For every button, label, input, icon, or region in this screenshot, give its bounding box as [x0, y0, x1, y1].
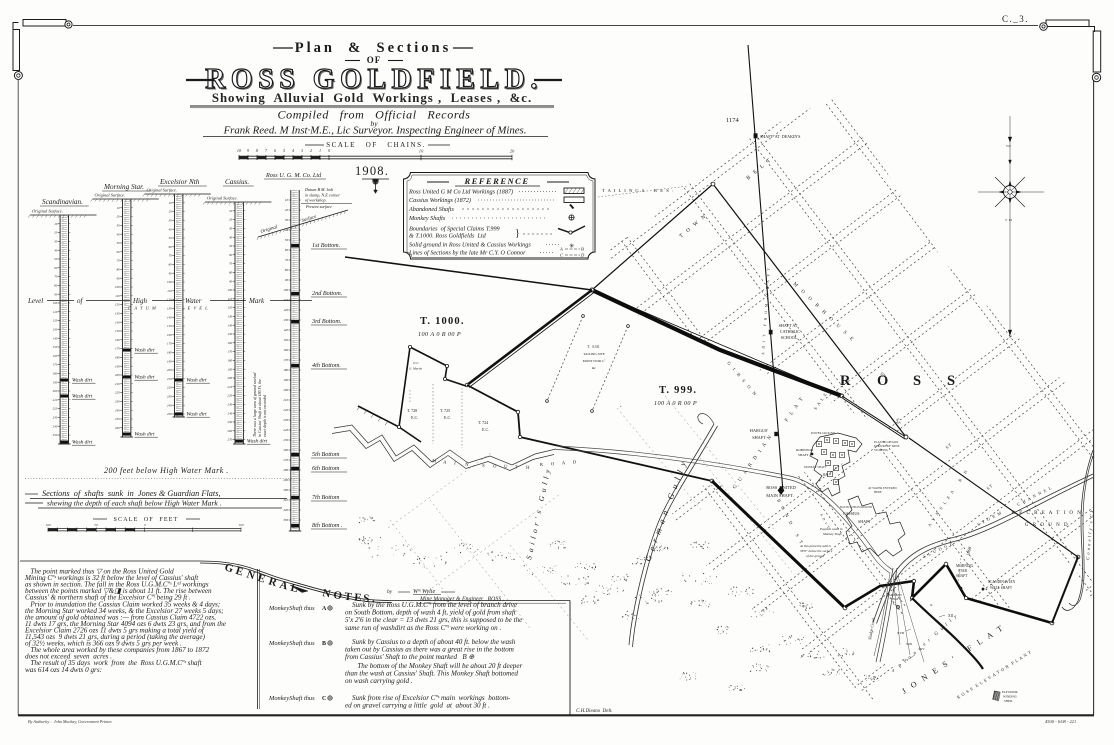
svg-text:40: 40	[229, 235, 233, 239]
svg-text:20: 20	[229, 218, 233, 222]
svg-text:XIX: XIX	[906, 642, 913, 646]
svg-text:130: 130	[167, 307, 172, 311]
svg-text:180: 180	[53, 372, 58, 376]
svg-text:120: 120	[167, 298, 172, 302]
svg-text:140: 140	[228, 323, 233, 327]
svg-text:100: 100	[115, 285, 120, 289]
svg-text:C._3.: C._3.	[1002, 14, 1029, 24]
svg-text:Ross U. G. M. Co. Ltd: Ross U. G. M. Co. Ltd	[265, 172, 322, 179]
svg-text:MONT D'OR Cº: MONT D'OR Cº	[583, 359, 606, 363]
svg-text:38’6″ below the surface: 38’6″ below the surface	[800, 549, 833, 553]
svg-text:50: 50	[169, 236, 173, 240]
svg-text:Present surface: Present surface	[305, 204, 332, 209]
svg-text:E.C.: E.C.	[444, 415, 451, 420]
svg-text:200: 200	[167, 368, 172, 372]
svg-text:60: 60	[229, 253, 233, 257]
svg-text:by: by	[387, 589, 393, 595]
svg-text:MonkeyShaft thus: MonkeyShaft thus	[268, 695, 315, 702]
svg-text:70: 70	[117, 259, 121, 263]
svg-text:R E C R E A T I O N: R E C R E A T I O N	[1012, 511, 1083, 516]
svg-text:160: 160	[228, 341, 233, 345]
svg-text:240: 240	[228, 411, 233, 415]
svg-text:D A T U M: D A T U M	[127, 306, 157, 311]
svg-text:MonkeyShaft thus: MonkeyShaft thus	[268, 640, 315, 647]
svg-text:110: 110	[284, 298, 289, 302]
svg-text:80: 80	[285, 268, 289, 272]
svg-text:170: 170	[283, 358, 288, 362]
svg-text:Original Surface.: Original Surface.	[32, 209, 63, 214]
svg-text:100: 100	[238, 523, 243, 527]
svg-text:1st Bottom.: 1st Bottom.	[312, 242, 340, 249]
svg-text:AT WATER ENTERED: AT WATER ENTERED	[868, 486, 898, 490]
svg-text:SHAFT: SHAFT	[858, 519, 871, 524]
svg-text:100 A 0 R 00 P: 100 A 0 R 00 P	[418, 331, 461, 338]
svg-text:270: 270	[228, 438, 233, 442]
svg-text:20: 20	[510, 149, 515, 154]
svg-text:T M: T M	[1005, 218, 1012, 222]
svg-text:150: 150	[115, 329, 120, 333]
svg-text:250: 250	[228, 420, 233, 424]
svg-text:5th Bottom: 5th Bottom	[312, 451, 340, 458]
svg-text:220: 220	[283, 408, 288, 412]
svg-text:There was a large area of grou: There was a large area of ground worked	[253, 373, 257, 437]
svg-text:Original Surface.: Original Surface.	[207, 196, 238, 201]
svg-text:Excelsior Nth: Excelsior Nth	[159, 178, 200, 186]
svg-text:CASSIUS: CASSIUS	[843, 511, 859, 516]
svg-text:Wash dirt: Wash dirt	[247, 439, 268, 445]
svg-text:180: 180	[283, 368, 288, 372]
svg-text:210: 210	[53, 398, 58, 402]
svg-text:4th Bottom.: 4th Bottom.	[312, 362, 341, 369]
svg-text:T. 999.: T. 999.	[659, 385, 697, 396]
svg-text:SHAFT AT DEAKIN'S: SHAFT AT DEAKIN'S	[760, 134, 801, 139]
svg-text:Water: Water	[185, 297, 202, 305]
svg-text:Original Surface.: Original Surface.	[95, 193, 126, 198]
svg-text:160: 160	[115, 338, 120, 342]
svg-text:of the ground: of the ground	[806, 554, 824, 558]
svg-text:60: 60	[54, 266, 58, 270]
svg-text:POWER GROUND: POWER GROUND	[811, 431, 836, 435]
svg-text:MonkeyShaft thus: MonkeyShaft thus	[268, 605, 315, 612]
svg-text:Cassius Workings (1872): Cassius Workings (1872)	[409, 197, 471, 204]
svg-text:Abandoned Shafts: Abandoned Shafts	[408, 206, 454, 213]
svg-text:E.C.: E.C.	[482, 427, 489, 432]
svg-text:T: T	[515, 464, 518, 469]
svg-text:170: 170	[53, 363, 58, 367]
svg-text:T.N: T.N	[1006, 144, 1012, 148]
svg-text:TAILING SITE: TAILING SITE	[583, 352, 604, 356]
svg-text:170: 170	[167, 342, 172, 346]
svg-text:T. 725: T. 725	[440, 408, 450, 413]
svg-text:220: 220	[115, 391, 120, 395]
svg-text:300: 300	[283, 488, 288, 492]
svg-text:200: 200	[283, 388, 288, 392]
svg-text:High: High	[132, 297, 148, 305]
svg-text:150: 150	[53, 345, 58, 349]
svg-text:230: 230	[53, 416, 58, 420]
svg-text:Wash dirt: Wash dirt	[72, 440, 93, 446]
svg-text:250: 250	[167, 412, 172, 416]
svg-text:7th Bottom: 7th Bottom	[312, 494, 340, 501]
svg-text:180: 180	[115, 356, 120, 360]
svg-text:70: 70	[54, 275, 58, 279]
svg-text:T. 1000.: T. 1000.	[420, 316, 465, 327]
svg-text:10: 10	[169, 201, 173, 205]
svg-text:120: 120	[53, 319, 58, 323]
svg-text:C: C	[322, 696, 326, 702]
svg-text:170: 170	[115, 347, 120, 351]
svg-text:&c: &c	[592, 366, 597, 370]
svg-text:A: A	[322, 606, 327, 612]
svg-text:40: 40	[117, 232, 121, 236]
svg-text:110: 110	[115, 294, 120, 298]
svg-text:8th Bottom .: 8th Bottom .	[312, 522, 342, 529]
svg-text:320: 320	[283, 508, 288, 512]
svg-text:Cassius.: Cassius.	[225, 178, 249, 186]
svg-text:SHAFT: SHAFT	[891, 597, 901, 601]
svg-text:C.H.Dieano Delt.: C.H.Dieano Delt.	[576, 709, 613, 714]
svg-text:4500 - 6/08 - 221: 4500 - 6/08 - 221	[1045, 719, 1076, 724]
svg-text:WINDING: WINDING	[1003, 695, 1018, 699]
svg-text:was 614 ozs 14 dwts 0 grs:: was 614 ozs 14 dwts 0 grs:	[25, 666, 102, 674]
svg-text:190: 190	[283, 378, 288, 382]
svg-text:1908.: 1908.	[355, 164, 389, 178]
svg-text:270: 270	[283, 458, 288, 462]
svg-text:250: 250	[115, 417, 120, 421]
svg-text:90: 90	[117, 276, 121, 280]
svg-text:190: 190	[228, 367, 233, 371]
svg-text:80: 80	[229, 271, 233, 275]
svg-text:HERE: HERE	[874, 490, 882, 494]
svg-text:O.C.: O.C.	[413, 361, 419, 365]
svg-text:30: 30	[117, 224, 121, 228]
svg-text:20: 20	[169, 210, 173, 214]
svg-text:30: 30	[54, 240, 58, 244]
svg-text:70: 70	[229, 262, 233, 266]
svg-text:REFERENCE: REFERENCE	[464, 176, 530, 186]
svg-text:2nd Bottom.: 2nd Bottom.	[312, 290, 342, 297]
svg-text:90: 90	[285, 278, 289, 282]
svg-text:E.C.: E.C.	[411, 415, 418, 420]
svg-text:240: 240	[53, 424, 58, 428]
svg-text:210: 210	[115, 382, 120, 386]
svg-text:CATHOLIC: CATHOLIC	[780, 329, 801, 334]
svg-text:Level: Level	[27, 297, 43, 305]
svg-text:50: 50	[117, 241, 121, 245]
svg-text:Frank Reed. M Inst·M.E., Lic S: Frank Reed. M Inst·M.E., Lic Surveyor. I…	[223, 125, 527, 137]
svg-text:Wash dirt: Wash dirt	[186, 412, 207, 418]
svg-text:4: 4	[292, 148, 294, 153]
svg-text:160: 160	[167, 333, 172, 337]
svg-text:80: 80	[54, 284, 58, 288]
svg-text:210: 210	[283, 398, 288, 402]
svg-text:Morning Star.: Morning Star.	[103, 183, 144, 191]
svg-text:Solid ground in Ross United &: Solid ground in Ross United & Cassius Wo…	[409, 242, 531, 249]
svg-text:Wash dirt: Wash dirt	[186, 378, 207, 384]
svg-text:70: 70	[169, 254, 173, 258]
svg-text:on wash carrying gold .: on wash carrying gold .	[345, 677, 413, 685]
svg-text:40: 40	[169, 227, 173, 231]
svg-text:130: 130	[228, 315, 233, 319]
svg-text:10: 10	[229, 209, 233, 213]
svg-text:140: 140	[283, 328, 288, 332]
svg-text:80: 80	[169, 263, 173, 267]
svg-text:Boundaries of Special Claims: Boundaries of Special Claims T.999	[409, 226, 500, 233]
svg-text:20: 20	[117, 215, 121, 219]
svg-text:20: 20	[285, 208, 289, 212]
svg-text:230: 230	[283, 418, 288, 422]
svg-text:140: 140	[53, 336, 58, 340]
svg-text:T A I L I N G S R E S :: T A I L I N G S R E S :	[602, 188, 674, 193]
svg-text:ROBINSON: ROBINSON	[796, 448, 814, 452]
svg-text:0: 0	[144, 523, 146, 527]
svg-text:1174: 1174	[726, 117, 740, 124]
svg-text:50: 50	[229, 244, 233, 248]
svg-text:120: 120	[228, 306, 233, 310]
svg-text:100: 100	[45, 523, 50, 527]
svg-text:exact depth is not recorded: exact depth is not recorded	[263, 395, 267, 437]
svg-text:BASTICA HIGH GROUND: BASTICA HIGH GROUND	[840, 506, 872, 509]
svg-text:80: 80	[117, 268, 121, 272]
svg-text:2: 2	[310, 148, 312, 153]
svg-text:Sections of shafts sunk in: Sections of shafts sunk in Jones & Guard…	[42, 489, 221, 498]
svg-text:210: 210	[228, 385, 233, 389]
svg-text:}: }	[515, 228, 520, 239]
svg-text:260: 260	[228, 429, 233, 433]
svg-text:240: 240	[115, 408, 120, 412]
svg-text:150: 150	[283, 338, 288, 342]
svg-text:230: 230	[167, 395, 172, 399]
svg-text:60: 60	[117, 250, 121, 254]
svg-text:Wash dirt: Wash dirt	[134, 375, 155, 381]
svg-text:G. Martin: G. Martin	[409, 367, 423, 371]
svg-text:220: 220	[53, 407, 58, 411]
svg-text:G R O U N D: G R O U N D	[1025, 523, 1069, 528]
svg-text:SCANDINAVIAN: SCANDINAVIAN	[988, 580, 1015, 584]
svg-text:Wash dirt: Wash dirt	[134, 348, 155, 354]
svg-text:Mark: Mark	[248, 297, 265, 305]
svg-text:SHAFT AT: SHAFT AT	[779, 323, 798, 328]
svg-text:40: 40	[54, 248, 58, 252]
svg-text:T. 724: T. 724	[478, 420, 488, 425]
svg-text:ed on gravel carrying a little: ed on gravel carrying a little gold at a…	[345, 702, 490, 710]
svg-text:220: 220	[228, 394, 233, 398]
svg-text:& T.1000. Ross Goldfields Ltd: & T.1000. Ross Goldfields Ltd	[409, 233, 487, 240]
svg-text:30: 30	[229, 227, 233, 231]
svg-text:Monkey Shaft: Monkey Shaft	[822, 532, 843, 536]
svg-text:B: B	[322, 641, 326, 647]
svg-text:At this point the adit is: At this point the adit is	[799, 544, 831, 548]
svg-text:250: 250	[283, 438, 288, 442]
svg-text:SCALE OF CHAINS.: SCALE OF CHAINS.	[326, 141, 425, 149]
svg-text:Plan & Sections: Plan & Sections	[295, 40, 452, 56]
svg-text:330: 330	[283, 518, 288, 522]
svg-text:100: 100	[283, 288, 288, 292]
svg-text:230: 230	[228, 403, 233, 407]
svg-text:170: 170	[228, 350, 233, 354]
svg-text:90: 90	[229, 279, 233, 283]
svg-text:10: 10	[419, 149, 424, 154]
svg-text:SHAFT: SHAFT	[798, 453, 810, 457]
svg-text:HARGUS': HARGUS'	[750, 428, 769, 433]
svg-text:200: 200	[53, 389, 58, 393]
svg-text:140: 140	[115, 320, 120, 324]
svg-text:Showing Alluvial Gold Worki: Showing Alluvial Gold Workings , Leases …	[212, 91, 532, 105]
svg-text:50: 50	[54, 257, 58, 261]
svg-text:1: 1	[319, 148, 321, 153]
svg-text:Lines of Sections by the late: Lines of Sections by the late Mr C.Y. O …	[408, 250, 526, 257]
svg-text:200: 200	[228, 376, 233, 380]
svg-text:XVII: XVII	[897, 631, 905, 635]
svg-text:140: 140	[167, 315, 172, 319]
svg-text:shewing the depth of each shaf: shewing the depth of each shaft below Hi…	[47, 499, 222, 508]
svg-text:90: 90	[54, 292, 58, 296]
svg-text:ELEVATOR: ELEVATOR	[1002, 690, 1018, 694]
svg-text:50: 50	[285, 238, 289, 242]
svg-text:160: 160	[53, 354, 58, 358]
svg-text:MORNING: MORNING	[956, 564, 974, 568]
svg-text:230: 230	[115, 400, 120, 404]
svg-text:SCALE OF FEET: SCALE OF FEET	[113, 517, 178, 523]
svg-text:200: 200	[115, 373, 120, 377]
svg-text:200 feet below High Water Mark: 200 feet below High Water Mark .	[104, 466, 229, 475]
svg-text:Scandinavian.: Scandinavian.	[42, 198, 83, 206]
svg-text:A: A	[559, 247, 563, 252]
svg-text:Ross United G M Co Ltd Working: Ross United G M Co Ltd Workings (1887)	[408, 189, 513, 196]
svg-text:S: S	[913, 373, 921, 389]
svg-text:30: 30	[169, 219, 173, 223]
svg-text:B: B	[581, 247, 584, 252]
svg-text:WELL SHAFT: WELL SHAFT	[990, 586, 1013, 590]
svg-text:160: 160	[283, 348, 288, 352]
svg-text:6th Bottom: 6th Bottom	[312, 465, 340, 472]
svg-text:Original Surface.: Original Surface.	[147, 188, 178, 193]
svg-text:180: 180	[228, 359, 233, 363]
svg-text:5: 5	[283, 148, 285, 153]
svg-text:240: 240	[167, 403, 172, 407]
svg-text:60: 60	[285, 248, 289, 252]
svg-text:260: 260	[283, 448, 288, 452]
svg-text:190: 190	[53, 380, 58, 384]
svg-text:STOPPING: STOPPING	[874, 448, 889, 452]
svg-text:150: 150	[228, 332, 233, 336]
svg-text:SCHOOL: SCHOOL	[781, 335, 798, 340]
svg-text:O: O	[877, 373, 888, 389]
svg-text:280: 280	[283, 468, 288, 472]
svg-text:STAR: STAR	[958, 569, 968, 573]
svg-text:130: 130	[283, 318, 288, 322]
svg-text:100: 100	[167, 280, 172, 284]
svg-text:120: 120	[283, 308, 288, 312]
svg-text:130: 130	[53, 328, 58, 332]
svg-text:L E V E L: L E V E L	[181, 306, 209, 311]
svg-text:100: 100	[53, 301, 58, 305]
svg-text:20: 20	[54, 231, 58, 235]
svg-text:S: S	[947, 373, 955, 389]
svg-text:10: 10	[285, 198, 289, 202]
svg-text:same run of washdirt as the Ro: same run of washdirt as the Ross Cºˡ wer…	[345, 624, 501, 632]
svg-text:110: 110	[53, 310, 58, 314]
svg-text:180: 180	[167, 351, 172, 355]
svg-text:Monkey Shafts: Monkey Shafts	[408, 215, 446, 222]
svg-text:10: 10	[117, 206, 121, 210]
svg-text:SHAFT: SHAFT	[956, 574, 968, 578]
svg-text:190: 190	[115, 364, 120, 368]
svg-text:260: 260	[115, 426, 120, 430]
svg-text:70: 70	[285, 258, 289, 262]
svg-text:90: 90	[169, 271, 173, 275]
svg-text:3: 3	[301, 148, 303, 153]
svg-text:8A: 8A	[823, 472, 828, 477]
svg-text:from Cassius' Shaft to the poi: from Cassius' Shaft to the point marked …	[345, 653, 474, 661]
svg-text:T. 728: T. 728	[407, 408, 417, 413]
svg-text:190: 190	[167, 359, 172, 363]
svg-text:100: 100	[228, 288, 233, 292]
svg-text:110: 110	[167, 289, 172, 293]
svg-text:R: R	[840, 373, 851, 389]
svg-text:210: 210	[167, 377, 172, 381]
svg-text:3rd Bottom.: 3rd Bottom.	[311, 318, 341, 325]
svg-text:M: M	[432, 458, 437, 464]
svg-text:50: 50	[94, 523, 98, 527]
svg-text:150: 150	[167, 324, 172, 328]
svg-text:T. 638.: T. 638.	[587, 345, 601, 349]
svg-text:Wash dirt: Wash dirt	[72, 378, 93, 384]
svg-text:10: 10	[54, 222, 58, 226]
svg-text:Datum B M. bolt: Datum B M. bolt	[304, 187, 334, 192]
svg-text:250: 250	[53, 433, 58, 437]
svg-text:120: 120	[115, 303, 120, 307]
svg-text:220: 220	[167, 386, 172, 390]
svg-text:60: 60	[169, 245, 173, 249]
svg-text:Wash dirt: Wash dirt	[72, 394, 93, 400]
svg-text:SHED.: SHED.	[1004, 699, 1013, 703]
svg-text:Wash dirt: Wash dirt	[134, 432, 155, 438]
svg-text:of workshop.: of workshop.	[305, 198, 327, 203]
svg-text:130: 130	[115, 312, 120, 316]
svg-text:30: 30	[285, 218, 289, 222]
svg-text:240: 240	[283, 428, 288, 432]
svg-text:Wᵐ Wylie: Wᵐ Wylie	[413, 589, 435, 595]
svg-text:MONKEY SHAFT: MONKEY SHAFT	[804, 465, 827, 469]
svg-text:100 A 0 R 00 P: 100 A 0 R 00 P	[654, 400, 697, 407]
